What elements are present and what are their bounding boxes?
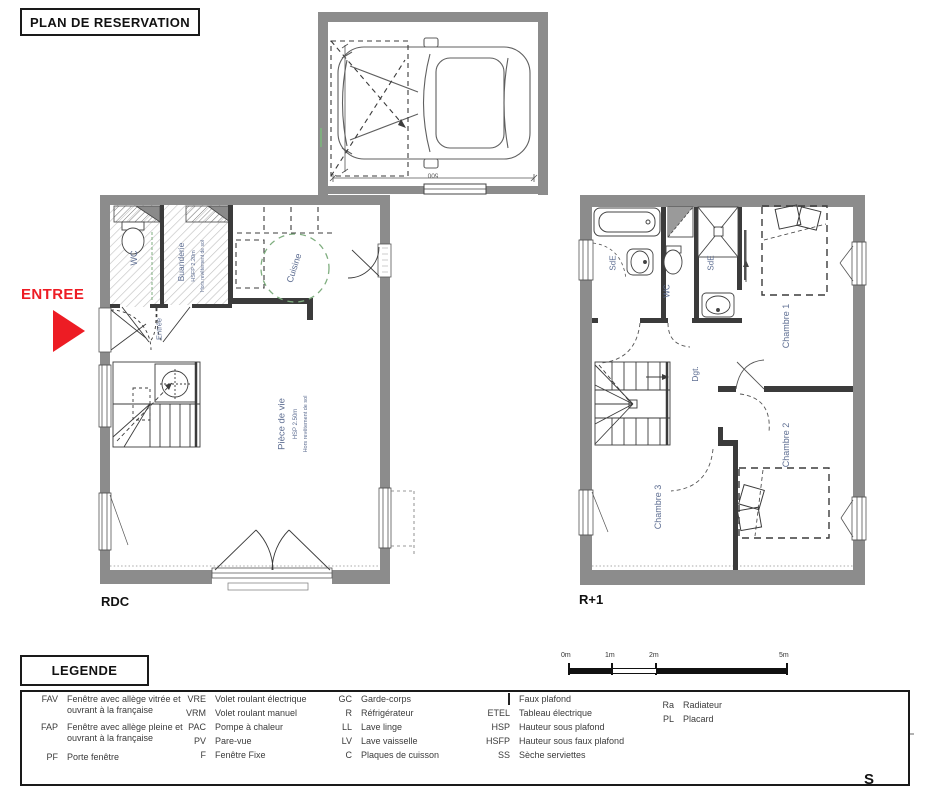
legend-abbr: GC — [328, 694, 352, 705]
rdc-parevue-dashes — [391, 491, 414, 556]
room-label-entree: Entrée — [155, 318, 164, 340]
legend-item-faux-plafond: Faux plafond — [468, 694, 571, 705]
garage-dimension-label: 500 — [428, 172, 439, 179]
wc-toilet — [122, 222, 144, 254]
legend-abbr: VRM — [176, 708, 206, 719]
room-label-sde2: SdE — [707, 255, 716, 270]
legend-desc: Tableau électrique — [519, 708, 592, 719]
legend-item-f: F Fenêtre Fixe — [176, 750, 266, 761]
scale-segment-black2 — [656, 668, 787, 674]
legend-desc: Plaques de cuisson — [361, 750, 439, 761]
garage-door — [424, 184, 486, 194]
legend-item-pl: PL Placard — [650, 714, 714, 725]
piece-floor-note: Hors revêtement de sol — [303, 396, 309, 453]
legend-desc: Garde-corps — [361, 694, 411, 705]
legend-desc: Pare-vue — [215, 736, 252, 747]
legend-abbr: R — [328, 708, 352, 719]
legend-item-pac: PAC Pompe à chaleur — [176, 722, 283, 733]
rdc-garage-door — [348, 244, 391, 278]
shower — [698, 207, 738, 257]
legend-item-gc: GC Garde-corps — [328, 694, 411, 705]
legend-desc: Pompe à chaleur — [215, 722, 283, 733]
compass-south-label: S — [864, 771, 874, 788]
scale-label-2m: 2m — [649, 652, 659, 659]
legend-abbr: FAV — [28, 694, 58, 716]
buanderie-floor-note: Hors revêtement de sol — [200, 240, 206, 292]
legend-abbr: LL — [328, 722, 352, 733]
legend-desc: Placard — [683, 714, 714, 725]
legend-title: LEGENDE — [20, 655, 149, 686]
legend-item-r: R Réfrigérateur — [328, 708, 414, 719]
room-label-chambre1: Chambre 1 — [781, 304, 791, 349]
legend-desc: Volet roulant électrique — [215, 694, 307, 705]
legend-abbr: C — [328, 750, 352, 761]
legend-item-vrm: VRM Volet roulant manuel — [176, 708, 297, 719]
scale-label-1m: 1m — [605, 652, 615, 659]
floor-label-r1: R+1 — [579, 592, 603, 607]
piece-height-note: HSP 2.50m — [293, 409, 299, 440]
legend-desc: Lave linge — [361, 722, 402, 733]
legend-item-etel: ETEL Tableau électrique — [468, 708, 592, 719]
legend-abbr: ETEL — [468, 708, 510, 719]
legend-item-pv: PV Pare-vue — [176, 736, 252, 747]
room-label-dgt: Dgt. — [690, 366, 700, 382]
room-label-wc-rdc: WC — [129, 251, 139, 266]
legend-abbr: PAC — [176, 722, 206, 733]
bathtub — [594, 208, 660, 236]
room-label-buanderie: Buanderie — [176, 243, 186, 282]
legend-item-ll: LL Lave linge — [328, 722, 402, 733]
legend-item-fap: FAP Fenêtre avec allège pleine et ouvran… — [28, 722, 189, 744]
scale-segment-black1 — [568, 668, 612, 674]
chambre2-bed — [737, 468, 829, 538]
legend-abbr: HSP — [468, 722, 510, 733]
legend-item-ra: Ra Radiateur — [650, 700, 722, 711]
radiator-strip — [743, 230, 749, 282]
legend-desc: Fenêtre avec allège vitrée et ouvrant à … — [67, 694, 189, 716]
legend-item-hsp: HSP Hauteur sous plafond — [468, 722, 605, 733]
scale-label-0m: 0m — [561, 652, 571, 659]
room-label-wc-r1: WC — [663, 284, 672, 297]
legend-abbr: FAP — [28, 722, 58, 744]
legend-abbr: F — [176, 750, 206, 761]
legend-item-pf: PF Porte fenêtre — [28, 752, 119, 763]
car — [338, 38, 530, 168]
buanderie-height-note: HSFP 2.20m — [191, 250, 197, 281]
legend-desc: Radiateur — [683, 700, 722, 711]
legend-desc: Faux plafond — [519, 694, 571, 705]
legend-desc: Fenêtre avec allège pleine et ouvrant à … — [67, 722, 189, 744]
sde2-sink — [702, 293, 734, 317]
legend-item-ss: SS Sèche serviettes — [468, 750, 586, 761]
sde1-sink — [627, 249, 653, 275]
legend-desc: Porte fenêtre — [67, 752, 119, 763]
legend-desc: Hauteur sous plafond — [519, 722, 605, 733]
legend-desc: Lave vaisselle — [361, 736, 418, 747]
floor-label-rdc: RDC — [101, 594, 129, 609]
r1-stairs — [595, 362, 670, 445]
legend-desc: Volet roulant manuel — [215, 708, 297, 719]
entree-arrow-icon — [53, 310, 85, 352]
garage-dim-line — [330, 44, 537, 182]
legend-swatch-cell — [468, 694, 510, 705]
legend-desc: Sèche serviettes — [519, 750, 586, 761]
chambre1-bed — [762, 205, 827, 295]
scale-segment-white — [612, 668, 658, 674]
legend-desc: Fenêtre Fixe — [215, 750, 266, 761]
room-label-sde1: SdE — [609, 255, 618, 270]
rdc-doors — [111, 307, 190, 350]
legend-item-fav: FAV Fenêtre avec allège vitrée et ouvran… — [28, 694, 189, 716]
legend-abbr: PF — [28, 752, 58, 763]
legend-abbr: PV — [176, 736, 206, 747]
legend-item-c: C Plaques de cuisson — [328, 750, 439, 761]
french-door — [212, 530, 332, 590]
legend-abbr: HSFP — [468, 736, 510, 747]
legend-item-hsfp: HSFP Hauteur sous faux plafond — [468, 736, 624, 747]
floor-plan-page: PLAN DE RESERVATION ENTREE WC Buanderie … — [0, 0, 943, 800]
legend-item-lv: LV Lave vaisselle — [328, 736, 418, 747]
legend-desc: Hauteur sous faux plafond — [519, 736, 624, 747]
room-label-chambre2: Chambre 2 — [781, 423, 791, 468]
plan-title: PLAN DE RESERVATION — [20, 8, 200, 36]
entree-label: ENTREE — [21, 286, 84, 303]
rdc-stairs — [113, 362, 200, 447]
legend-abbr: Ra — [650, 700, 674, 711]
legend-item-vre: VRE Volet roulant électrique — [176, 694, 307, 705]
legend-abbr: PL — [650, 714, 674, 725]
legend-desc: Réfrigérateur — [361, 708, 414, 719]
room-label-chambre3: Chambre 3 — [653, 485, 663, 530]
room-label-piece-de-vie: Pièce de vie — [277, 398, 288, 450]
legend-abbr: LV — [328, 736, 352, 747]
faux-plafond-swatch — [508, 693, 510, 705]
legend-abbr: SS — [468, 750, 510, 761]
r1-wc-toilet — [664, 246, 682, 274]
legend-abbr: VRE — [176, 694, 206, 705]
faux-plafond-square — [668, 207, 693, 237]
scale-label-5m: 5m — [779, 652, 789, 659]
